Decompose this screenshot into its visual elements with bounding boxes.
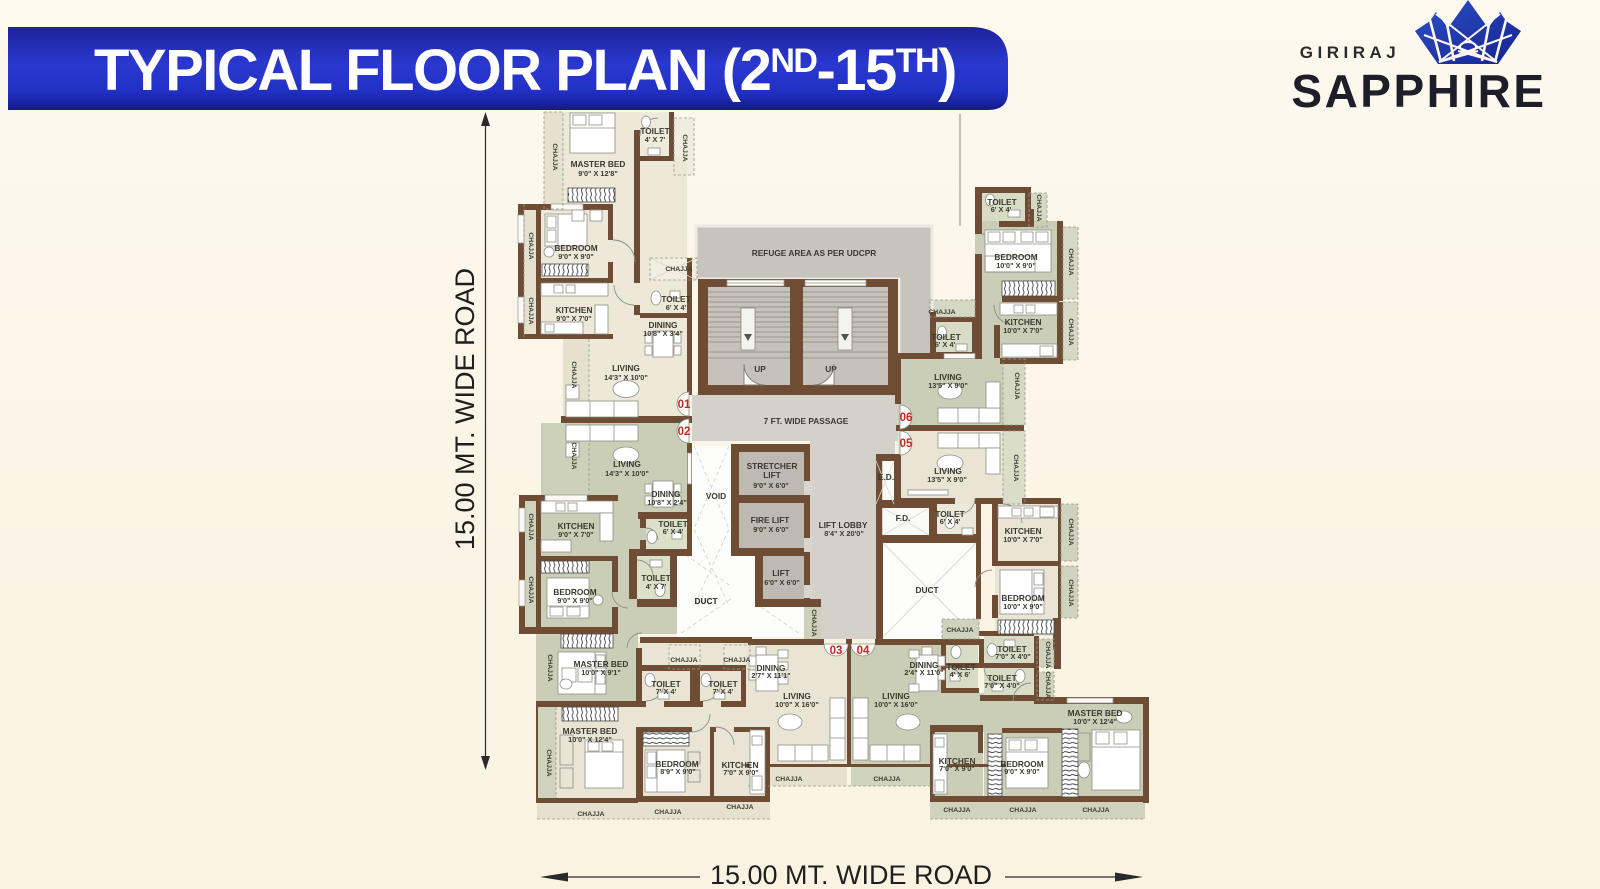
svg-text:02: 02 <box>678 426 691 438</box>
svg-text:CHAJJA: CHAJJA <box>1067 579 1074 606</box>
svg-text:DUCT: DUCT <box>915 585 938 595</box>
svg-text:CHAJJA: CHAJJA <box>681 134 688 161</box>
svg-text:10'0" X 7'0": 10'0" X 7'0" <box>1003 326 1043 335</box>
svg-text:CHAJJA: CHAJJA <box>577 811 604 818</box>
svg-text:10'0" X 9'0": 10'0" X 9'0" <box>996 261 1036 270</box>
svg-text:LIVING: LIVING <box>613 459 641 469</box>
svg-text:REFUGE AREA AS PER UDCPR: REFUGE AREA AS PER UDCPR <box>752 248 876 258</box>
svg-text:9'0" X 7'0": 9'0" X 7'0" <box>556 314 592 323</box>
svg-text:CHAJJA: CHAJJA <box>546 654 553 681</box>
svg-text:CHAJJA: CHAJJA <box>551 143 558 170</box>
svg-text:7' X 4': 7' X 4' <box>656 687 677 696</box>
svg-text:CHAJJA: CHAJJA <box>670 657 697 664</box>
svg-text:10'0" X 16'0": 10'0" X 16'0" <box>775 700 819 709</box>
svg-text:6' X 4': 6' X 4' <box>991 205 1012 214</box>
svg-text:CHAJJA: CHAJJA <box>928 309 955 316</box>
svg-text:CHAJJA: CHAJJA <box>943 807 970 814</box>
svg-text:4' X 7': 4' X 7' <box>645 135 666 144</box>
svg-text:10'0" X 12'4": 10'0" X 12'4" <box>568 735 612 744</box>
svg-text:CHAJJA: CHAJJA <box>654 809 681 816</box>
svg-text:9'0" X 9'0": 9'0" X 9'0" <box>1004 767 1040 776</box>
svg-text:8'4" X 20'0": 8'4" X 20'0" <box>824 529 864 538</box>
svg-text:F.D.: F.D. <box>896 513 911 523</box>
svg-text:CHAJJA: CHAJJA <box>775 776 802 783</box>
svg-text:10'0" X 16'0": 10'0" X 16'0" <box>874 700 918 709</box>
svg-text:CHAJJA: CHAJJA <box>527 232 534 259</box>
svg-text:10'0" X 7'0": 10'0" X 7'0" <box>1003 535 1043 544</box>
svg-text:9'0" X 9'0": 9'0" X 9'0" <box>558 252 594 261</box>
svg-text:4' X 7': 4' X 7' <box>646 582 667 591</box>
svg-text:15.00 MT. WIDE ROAD: 15.00 MT. WIDE ROAD <box>710 860 992 889</box>
svg-text:2'4" X 11'0": 2'4" X 11'0" <box>904 668 943 677</box>
svg-text:9'0" X 6'0": 9'0" X 6'0" <box>753 525 789 534</box>
svg-text:CHAJJA: CHAJJA <box>1067 318 1074 345</box>
svg-text:CHAJJA: CHAJJA <box>1067 518 1074 545</box>
svg-text:13'5" X 9'0": 13'5" X 9'0" <box>928 381 968 390</box>
svg-text:CHAJJA: CHAJJA <box>810 609 817 636</box>
svg-text:UP: UP <box>825 364 837 374</box>
svg-text:CHAJJA: CHAJJA <box>946 627 973 634</box>
svg-text:CHAJJA: CHAJJA <box>665 266 692 273</box>
svg-text:VOID: VOID <box>706 491 726 501</box>
svg-text:01: 01 <box>678 399 691 411</box>
svg-text:7'0" X 4'0": 7'0" X 4'0" <box>995 652 1031 661</box>
svg-text:CHAJJA: CHAJJA <box>527 513 534 540</box>
svg-text:10'0" X 9'0": 10'0" X 9'0" <box>1003 602 1043 611</box>
svg-text:7'0" X 9'0": 7'0" X 9'0" <box>723 768 759 777</box>
svg-text:CHAJJA: CHAJJA <box>1044 671 1051 698</box>
svg-text:GIRIRAJ: GIRIRAJ <box>1300 43 1400 62</box>
svg-text:7 FT. WIDE PASSAGE: 7 FT. WIDE PASSAGE <box>764 416 849 426</box>
svg-text:14'3" X 10'0": 14'3" X 10'0" <box>604 373 648 382</box>
svg-text:14'3" X 10'0": 14'3" X 10'0" <box>605 469 649 478</box>
svg-text:06: 06 <box>900 412 913 424</box>
svg-text:LIVING: LIVING <box>612 363 640 373</box>
svg-text:UP: UP <box>754 364 766 374</box>
svg-text:9'0" X 9'0": 9'0" X 9'0" <box>557 596 593 605</box>
svg-text:CHAJJA: CHAJJA <box>570 442 577 469</box>
svg-text:CHAJJA: CHAJJA <box>1035 194 1042 221</box>
svg-text:CHAJJA: CHAJJA <box>1009 807 1036 814</box>
svg-text:E.D.: E.D. <box>878 472 894 482</box>
svg-text:CHAJJA: CHAJJA <box>726 804 753 811</box>
svg-text:10'8" X 2'4": 10'8" X 2'4" <box>647 498 687 507</box>
svg-text:CHAJJA: CHAJJA <box>723 657 750 664</box>
svg-text:DUCT: DUCT <box>694 596 717 606</box>
svg-text:05: 05 <box>900 438 913 450</box>
svg-text:2'7" X 11'1": 2'7" X 11'1" <box>751 671 790 680</box>
svg-text:CHAJJA: CHAJJA <box>1082 807 1109 814</box>
svg-text:MASTER BED: MASTER BED <box>571 159 626 169</box>
svg-text:6' X 4': 6' X 4' <box>663 527 684 536</box>
svg-text:7'0" X 4'0": 7'0" X 4'0" <box>984 681 1020 690</box>
svg-text:10'0" X 12'4": 10'0" X 12'4" <box>1073 717 1117 726</box>
svg-text:CHAJJA: CHAJJA <box>1044 641 1051 668</box>
svg-text:03: 03 <box>830 645 843 657</box>
svg-text:10'0" X 9'1": 10'0" X 9'1" <box>581 668 621 677</box>
svg-text:CHAJJA: CHAJJA <box>545 749 552 776</box>
svg-text:7'0" X 9'0": 7'0" X 9'0" <box>939 764 975 773</box>
svg-text:SAPPHIRE: SAPPHIRE <box>1291 65 1546 117</box>
svg-text:CHAJJA: CHAJJA <box>1067 248 1074 275</box>
svg-text:9'0" X 7'0": 9'0" X 7'0" <box>558 530 594 539</box>
svg-text:CHAJJA: CHAJJA <box>873 776 900 783</box>
svg-text:8'9" X 9'0": 8'9" X 9'0" <box>660 767 696 776</box>
svg-text:10'8" X 3'4": 10'8" X 3'4" <box>643 329 683 338</box>
svg-text:CHAJJA: CHAJJA <box>1012 454 1019 481</box>
svg-text:4' X 6': 4' X 6' <box>950 670 971 679</box>
svg-text:TYPICAL FLOOR PLAN (2ND-15TH): TYPICAL FLOOR PLAN (2ND-15TH) <box>94 38 956 103</box>
svg-text:CHAJJA: CHAJJA <box>527 297 534 324</box>
svg-text:04: 04 <box>857 645 870 657</box>
svg-text:13'5" X 9'0": 13'5" X 9'0" <box>927 475 967 484</box>
svg-text:LIFT: LIFT <box>772 568 790 578</box>
svg-text:6' X 4': 6' X 4' <box>935 340 956 349</box>
svg-text:6'0" X 6'0": 6'0" X 6'0" <box>764 578 800 587</box>
svg-text:CHAJJA: CHAJJA <box>570 361 577 388</box>
svg-text:CHAJJA: CHAJJA <box>527 576 534 603</box>
svg-text:LIFT: LIFT <box>763 470 781 480</box>
svg-text:9'0" X 6'0": 9'0" X 6'0" <box>753 481 789 490</box>
svg-text:6' X 4': 6' X 4' <box>666 303 687 312</box>
svg-text:6' X 4': 6' X 4' <box>940 517 961 526</box>
svg-text:15.00 MT. WIDE ROAD: 15.00 MT. WIDE ROAD <box>450 268 480 550</box>
svg-text:CHAJJA: CHAJJA <box>1013 372 1020 399</box>
svg-text:FIRE LIFT: FIRE LIFT <box>751 515 790 525</box>
svg-text:7' X 4': 7' X 4' <box>713 687 734 696</box>
svg-text:9'0" X 12'8": 9'0" X 12'8" <box>578 169 618 178</box>
